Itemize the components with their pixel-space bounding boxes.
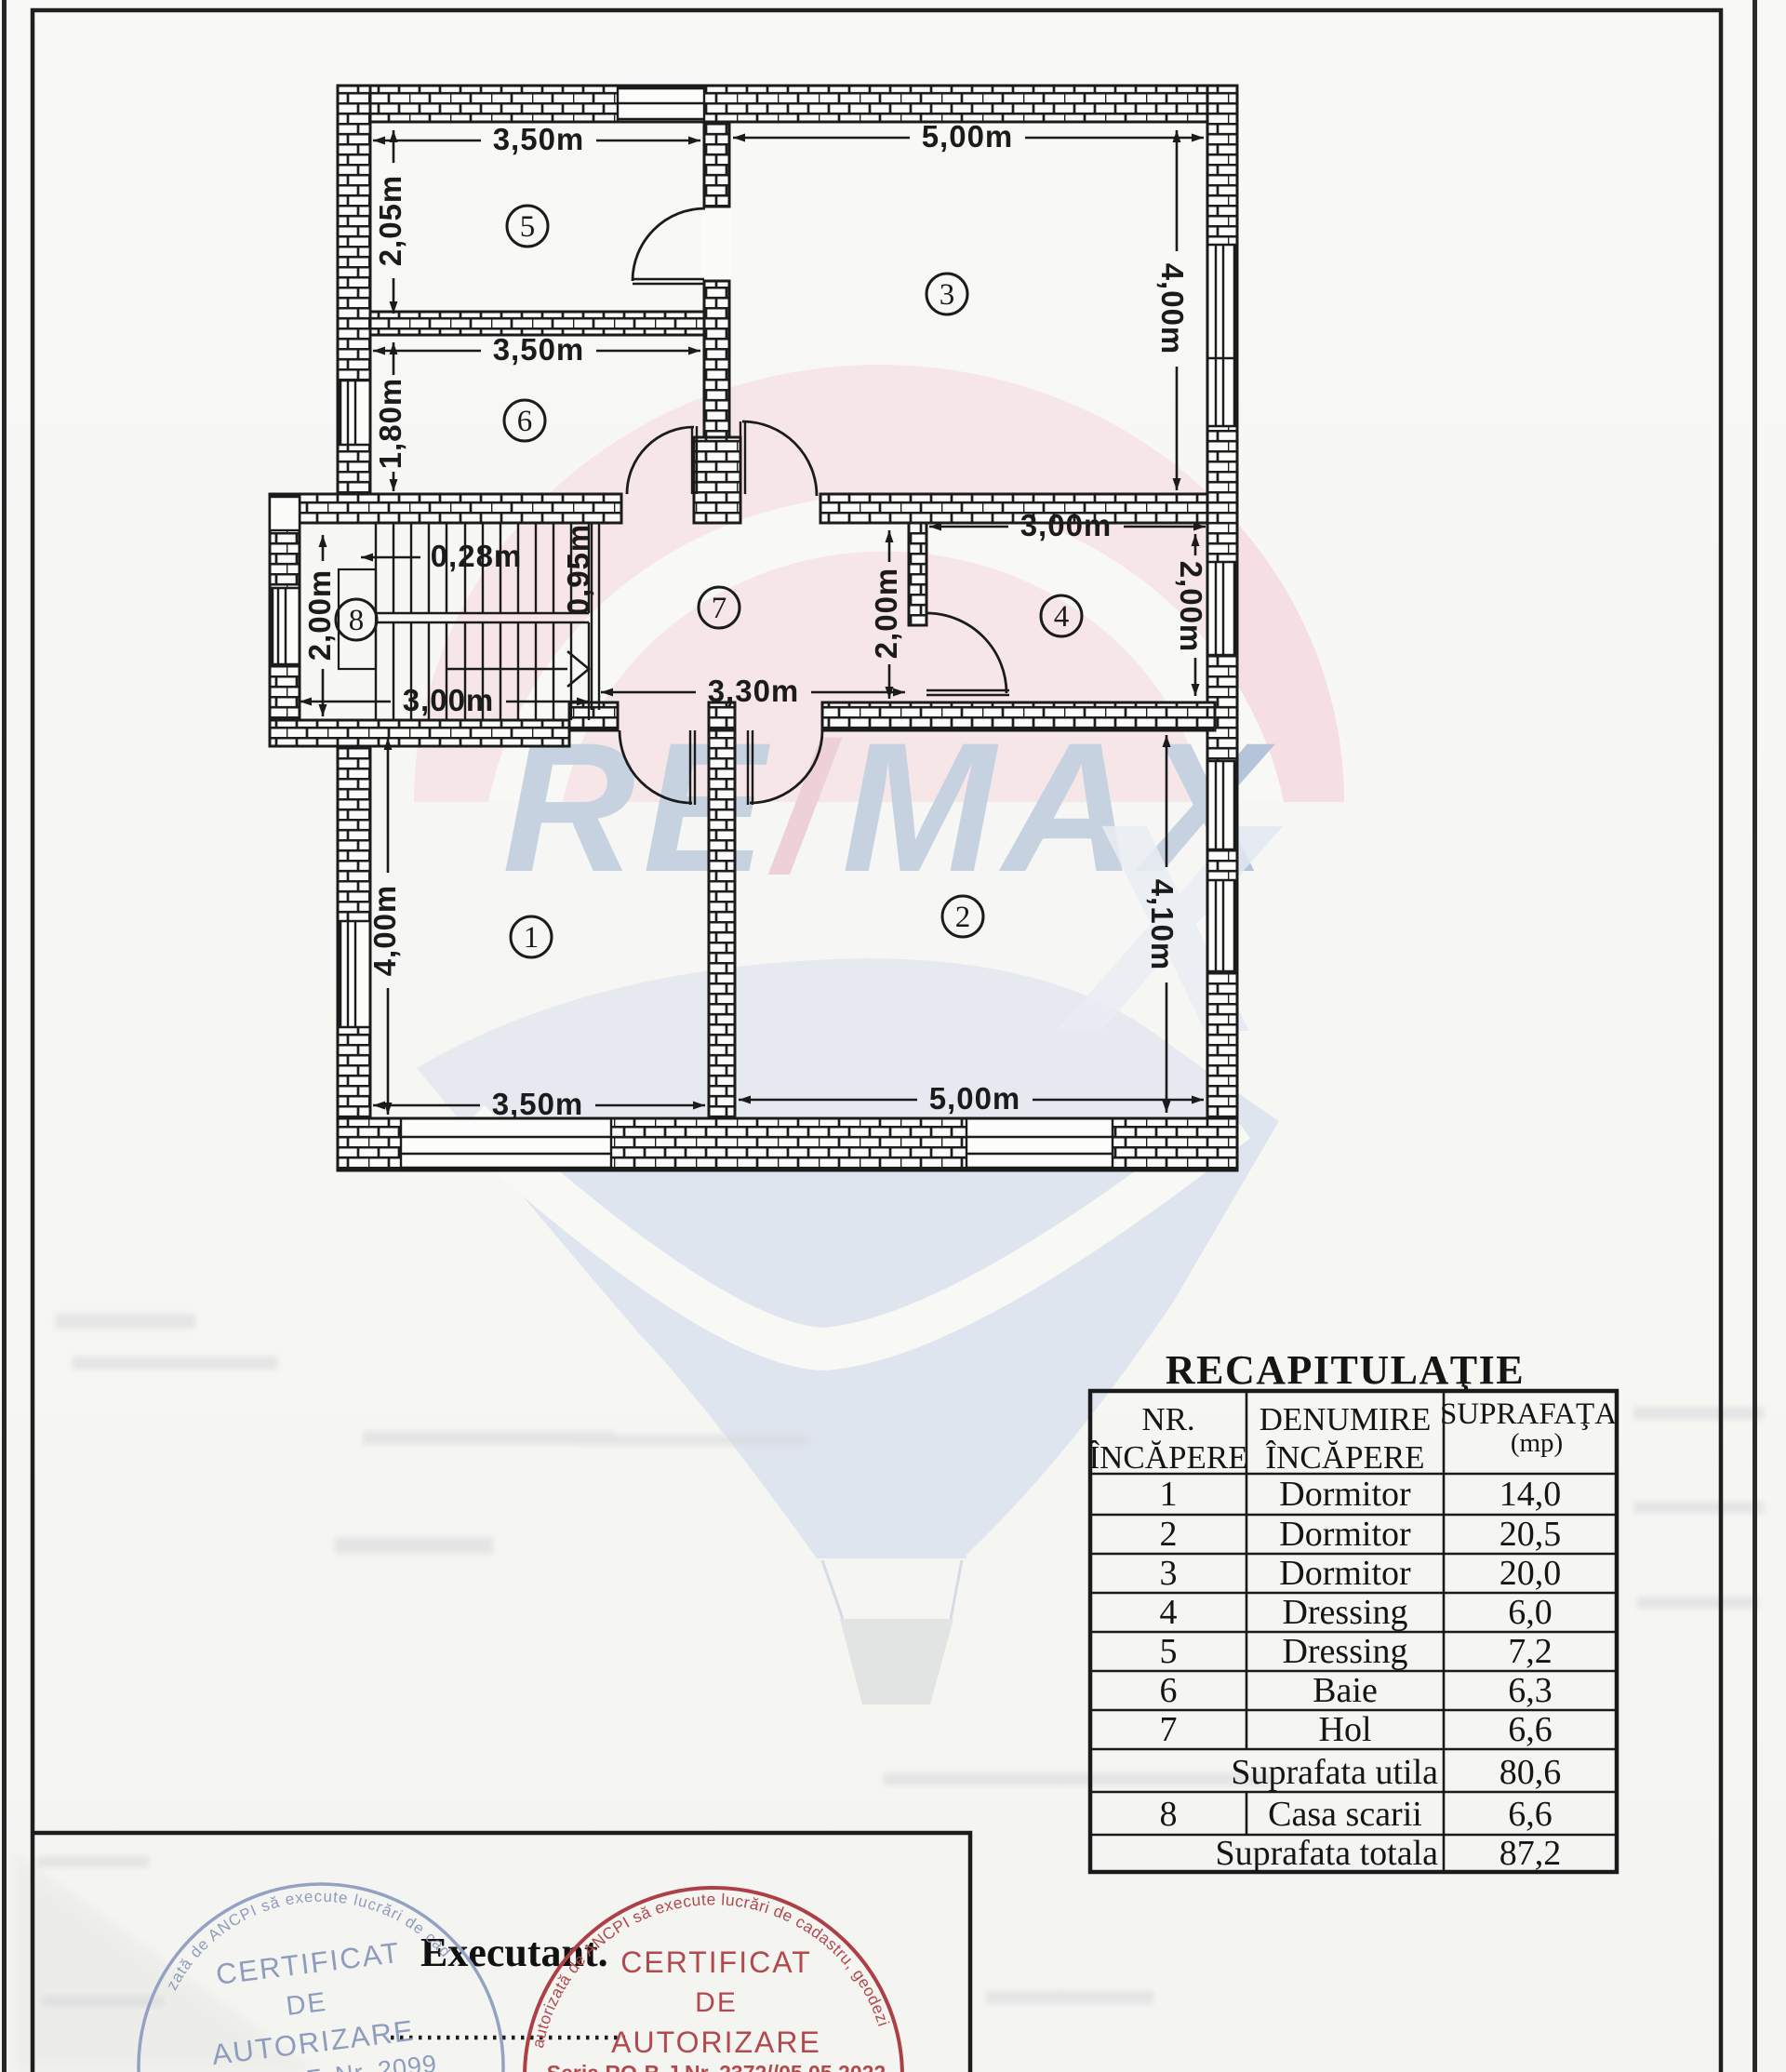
svg-text:2,00m: 2,00m <box>1174 561 1208 653</box>
svg-text:2,00m: 2,00m <box>869 568 903 660</box>
svg-text:5,00m: 5,00m <box>922 119 1014 154</box>
svg-text:4: 4 <box>1054 600 1070 634</box>
svg-text:Dormitor: Dormitor <box>1279 1515 1411 1554</box>
svg-text:1: 1 <box>1160 1475 1178 1514</box>
svg-text:Baie: Baie <box>1313 1671 1378 1710</box>
svg-text:3,50m: 3,50m <box>493 122 585 156</box>
svg-text:Dormitor: Dormitor <box>1279 1554 1411 1593</box>
svg-text:4,10m: 4,10m <box>1145 879 1180 971</box>
svg-text:7: 7 <box>1160 1710 1178 1749</box>
svg-text:4: 4 <box>1160 1593 1178 1632</box>
svg-text:8: 8 <box>349 604 365 637</box>
svg-text:3: 3 <box>1160 1554 1178 1593</box>
svg-text:2,00m: 2,00m <box>302 569 337 662</box>
svg-text:87,2: 87,2 <box>1499 1834 1562 1873</box>
svg-text:ÎNCĂPERE: ÎNCĂPERE <box>1088 1439 1247 1476</box>
svg-text:2,05m: 2,05m <box>373 175 407 267</box>
svg-text:2: 2 <box>955 901 971 934</box>
svg-text:6: 6 <box>517 405 533 438</box>
svg-text:Seria RO-B-J Nr. 2372//05.05.2: Seria RO-B-J Nr. 2372//05.05.2022 <box>547 2061 886 2072</box>
svg-text:4,00m: 4,00m <box>367 885 402 977</box>
svg-text:20,5: 20,5 <box>1499 1515 1562 1554</box>
svg-text:7: 7 <box>712 592 727 625</box>
svg-text:6,0: 6,0 <box>1508 1593 1553 1632</box>
svg-text:80,6: 80,6 <box>1499 1753 1562 1792</box>
svg-text:Casa scarii: Casa scarii <box>1268 1795 1422 1834</box>
svg-text:RECAPITULAŢIE: RECAPITULAŢIE <box>1166 1347 1525 1393</box>
svg-text:DE: DE <box>695 1987 738 2018</box>
svg-text:6: 6 <box>1160 1671 1178 1710</box>
svg-text:6,3: 6,3 <box>1508 1671 1553 1710</box>
svg-text:4,00m: 4,00m <box>1155 263 1190 355</box>
svg-text:Dressing: Dressing <box>1282 1632 1407 1671</box>
svg-text:NR.: NR. <box>1141 1401 1194 1437</box>
svg-text:AUTORIZARE: AUTORIZARE <box>611 2025 821 2059</box>
svg-text:Dressing: Dressing <box>1282 1593 1407 1632</box>
svg-text:(mp): (mp) <box>1511 1428 1563 1458</box>
svg-text:3,00m: 3,00m <box>1020 508 1113 542</box>
svg-text:3,30m: 3,30m <box>708 674 800 708</box>
svg-text:3,00m: 3,00m <box>403 683 495 717</box>
svg-text:5: 5 <box>520 210 536 244</box>
svg-text:14,0: 14,0 <box>1499 1475 1562 1514</box>
svg-text:CERTIFICAT: CERTIFICAT <box>620 1945 811 1979</box>
svg-text:0,28m: 0,28m <box>431 539 523 573</box>
svg-text:6,6: 6,6 <box>1508 1795 1553 1834</box>
svg-text:2: 2 <box>1160 1515 1178 1554</box>
svg-text:20,0: 20,0 <box>1499 1554 1562 1593</box>
svg-text:1,80m: 1,80m <box>373 378 407 470</box>
svg-text:Suprafata utila: Suprafata utila <box>1231 1753 1438 1792</box>
svg-text:3,50m: 3,50m <box>492 1087 584 1121</box>
svg-text:5,00m: 5,00m <box>929 1081 1021 1116</box>
svg-text:0,95m: 0,95m <box>561 524 595 616</box>
svg-text:3: 3 <box>940 278 955 312</box>
svg-text:7,2: 7,2 <box>1508 1632 1553 1671</box>
svg-text:6,6: 6,6 <box>1508 1710 1553 1749</box>
svg-text:5: 5 <box>1160 1632 1178 1671</box>
svg-text:SUPRAFAŢA: SUPRAFAŢA <box>1440 1397 1617 1431</box>
svg-text:Dormitor: Dormitor <box>1279 1475 1411 1514</box>
svg-text:Hol: Hol <box>1319 1710 1372 1749</box>
svg-text:1: 1 <box>524 921 540 955</box>
svg-text:DENUMIRE: DENUMIRE <box>1260 1401 1432 1437</box>
svg-text:3,50m: 3,50m <box>493 332 585 367</box>
svg-text:ÎNCĂPERE: ÎNCĂPERE <box>1265 1439 1424 1476</box>
svg-text:DE: DE <box>285 1987 329 2022</box>
svg-text:8: 8 <box>1160 1795 1178 1834</box>
svg-text:Suprafata totala: Suprafata totala <box>1215 1834 1438 1873</box>
